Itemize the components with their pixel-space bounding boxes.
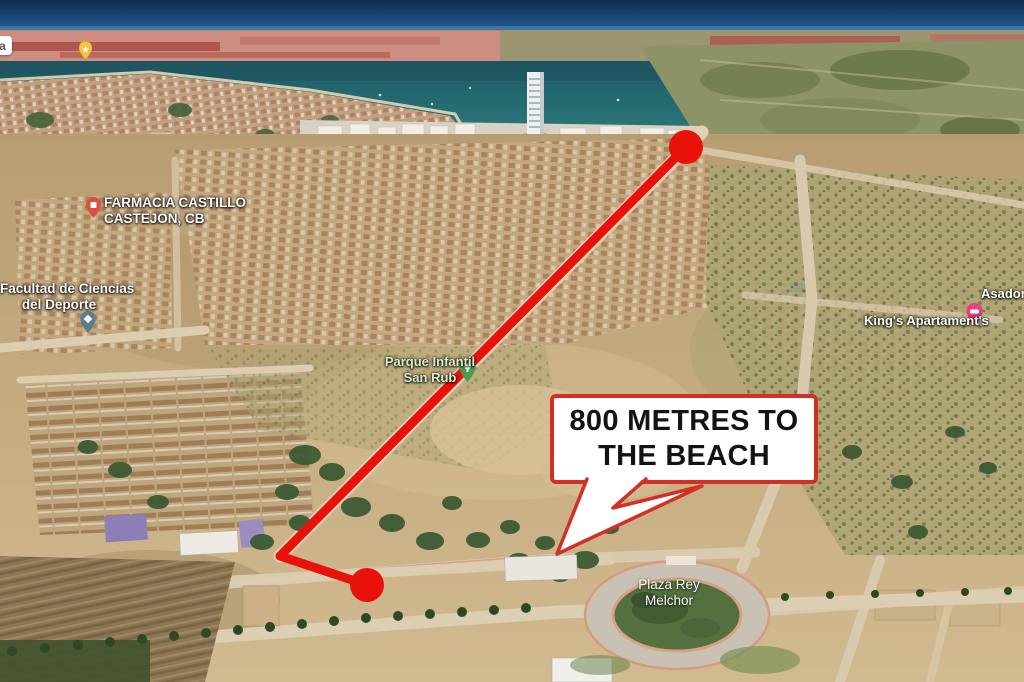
farmacia-pin[interactable] bbox=[86, 197, 101, 218]
label-farmacia[interactable]: FARMACIA CASTILLO CASTEJON, CB bbox=[104, 195, 246, 227]
high-rise-tower bbox=[522, 72, 550, 140]
partial-map-label[interactable]: a bbox=[0, 36, 12, 55]
callout-tail-outline bbox=[557, 479, 702, 554]
farmacia-pin-body[interactable] bbox=[86, 197, 101, 218]
star-pin-body[interactable] bbox=[79, 41, 92, 59]
sea bbox=[0, 0, 1024, 34]
route-dot-beach bbox=[669, 130, 703, 164]
facultad-pin-body[interactable] bbox=[80, 311, 96, 333]
callout-tail-fill bbox=[557, 476, 702, 554]
facultad-pin[interactable] bbox=[80, 311, 96, 333]
callout-tail bbox=[0, 0, 1024, 682]
route-line bbox=[280, 147, 686, 585]
label-kings-text: King's Apartament's bbox=[864, 313, 989, 329]
white-buildings bbox=[179, 530, 612, 682]
land-texture bbox=[20, 230, 1010, 650]
lagoon bbox=[0, 61, 1024, 141]
label-plaza-line1: Plaza Rey bbox=[617, 577, 721, 593]
route-annotation bbox=[280, 130, 703, 602]
label-plaza[interactable]: Plaza Rey Melchor bbox=[617, 577, 721, 609]
route-dot-origin bbox=[350, 568, 384, 602]
palm-trees bbox=[7, 587, 1012, 675]
scrubland bbox=[210, 165, 1024, 555]
label-facultad[interactable]: Facultad de Ciencias del Deporte bbox=[0, 281, 118, 313]
label-parque-line2: San Rub bbox=[378, 370, 482, 386]
callout-line1: 800 METRES TO bbox=[570, 404, 799, 439]
label-kings[interactable]: King's Apartament's bbox=[864, 313, 989, 329]
label-farmacia-line1: FARMACIA CASTILLO bbox=[104, 195, 246, 211]
trees bbox=[78, 426, 997, 582]
label-facultad-line1: Facultad de Ciencias bbox=[0, 281, 118, 297]
label-facultad-line2: del Deporte bbox=[0, 297, 118, 313]
school-icon bbox=[84, 315, 92, 323]
marsh-right bbox=[640, 40, 1024, 172]
fields bbox=[0, 556, 235, 682]
label-asador[interactable]: Asador bbox=[981, 286, 1024, 302]
aerial-map-view: ★ a FARMACIA CASTILLO CASTEJON, CB Facul… bbox=[0, 0, 1024, 682]
callout-line2: THE BEACH bbox=[598, 439, 770, 474]
star-icon: ★ bbox=[81, 45, 89, 55]
label-farmacia-line2: CASTEJON, CB bbox=[104, 211, 246, 227]
store-icon bbox=[91, 202, 97, 208]
salt-flats bbox=[0, 30, 1024, 64]
label-asador-text: Asador bbox=[981, 286, 1024, 302]
star-pin[interactable]: ★ bbox=[79, 41, 92, 59]
map-background bbox=[0, 0, 1024, 682]
label-parque-line1: Parque Infantil bbox=[378, 354, 482, 370]
roundabout bbox=[585, 556, 769, 669]
waterfront-buildings bbox=[300, 120, 700, 148]
distance-callout: 800 METRES TO THE BEACH bbox=[550, 394, 818, 484]
label-plaza-line2: Melchor bbox=[617, 593, 721, 609]
label-parque[interactable]: Parque Infantil San Rub bbox=[378, 354, 482, 386]
